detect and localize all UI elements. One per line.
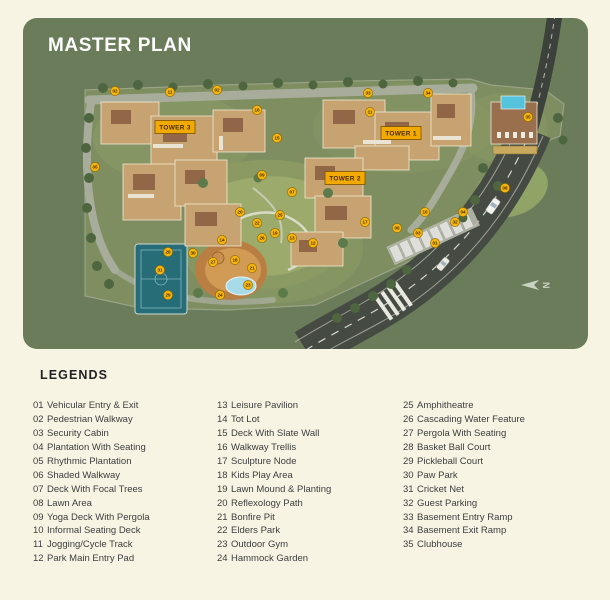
map-marker: 08 bbox=[500, 183, 509, 192]
legend-item-number: 33 bbox=[403, 512, 417, 523]
map-marker: 24 bbox=[215, 290, 224, 299]
map-marker-number: 12 bbox=[310, 241, 316, 246]
legend-item-number: 06 bbox=[33, 470, 47, 481]
legend-item-label: Rhythmic Plantation bbox=[47, 456, 131, 467]
legends-section: LEGENDS 01Vehicular Entry & Exit02Pedest… bbox=[33, 368, 595, 583]
map-marker-number: 21 bbox=[249, 266, 255, 271]
legend-item: 15Deck With Slate Wall bbox=[217, 427, 397, 441]
map-marker-number: 25 bbox=[277, 213, 283, 218]
map-marker-number: 16 bbox=[254, 108, 260, 113]
map-marker: 17 bbox=[360, 217, 369, 226]
map-marker: 15 bbox=[272, 133, 281, 142]
map-marker-number: 04 bbox=[460, 210, 466, 215]
legend-item: 21Bonfire Pit bbox=[217, 510, 397, 524]
legend-item-number: 25 bbox=[403, 400, 417, 411]
legend-item-label: Basket Ball Court bbox=[417, 442, 490, 453]
legend-item-number: 15 bbox=[217, 428, 231, 439]
legend-item-number: 35 bbox=[403, 539, 417, 550]
map-marker-number: 18 bbox=[232, 258, 238, 263]
legend-item: 12Park Main Entry Pad bbox=[33, 552, 213, 566]
legend-item: 08Lawn Area bbox=[33, 496, 213, 510]
map-marker-number: 26 bbox=[259, 236, 265, 241]
map-marker-number: 14 bbox=[219, 238, 225, 243]
legend-item-number: 09 bbox=[33, 512, 47, 523]
map-marker-number: 02 bbox=[112, 89, 118, 94]
map-marker-number: 11 bbox=[168, 90, 173, 95]
map-marker: 16 bbox=[252, 105, 261, 114]
legend-item-number: 16 bbox=[217, 442, 231, 453]
legend-item-number: 08 bbox=[33, 498, 47, 509]
legend-item-label: Basement Exit Ramp bbox=[417, 525, 506, 536]
legend-item-label: Lawn Area bbox=[47, 498, 92, 509]
map-marker-number: 03 bbox=[415, 231, 421, 236]
legend-item: 30Paw Park bbox=[403, 468, 583, 482]
legend-item-label: Plantation With Seating bbox=[47, 442, 146, 453]
master-plan-page: MASTER PLAN bbox=[0, 0, 610, 600]
legend-item-number: 10 bbox=[33, 525, 47, 536]
legend-item-label: Lawn Mound & Planting bbox=[231, 484, 331, 495]
legend-item-label: Kids Play Area bbox=[231, 470, 293, 481]
legend-item-label: Park Main Entry Pad bbox=[47, 553, 134, 564]
legend-item: 19Lawn Mound & Planting bbox=[217, 482, 397, 496]
legends-heading: LEGENDS bbox=[40, 368, 595, 382]
legend-item: 18Kids Play Area bbox=[217, 468, 397, 482]
legend-item: 20Reflexology Path bbox=[217, 496, 397, 510]
legend-item-number: 24 bbox=[217, 553, 231, 564]
legend-item-label: Leisure Pavilion bbox=[231, 400, 298, 411]
legend-item-number: 12 bbox=[33, 553, 47, 564]
map-marker: 33 bbox=[363, 88, 372, 97]
legend-item-number: 13 bbox=[217, 400, 231, 411]
tower-label: TOWER 3 bbox=[155, 121, 195, 134]
legend-item-number: 28 bbox=[403, 442, 417, 453]
legend-item: 31Cricket Net bbox=[403, 482, 583, 496]
legend-item-label: Deck With Slate Wall bbox=[231, 428, 319, 439]
legend-item-label: Yoga Deck With Pergola bbox=[47, 512, 150, 523]
legend-item-number: 02 bbox=[33, 414, 47, 425]
master-plan-panel: MASTER PLAN bbox=[23, 18, 588, 349]
map-marker: 09 bbox=[257, 170, 266, 179]
sports-court bbox=[135, 244, 187, 314]
legend-item-label: Vehicular Entry & Exit bbox=[47, 400, 138, 411]
map-marker-number: 07 bbox=[289, 190, 295, 195]
tower-label: TOWER 2 bbox=[325, 172, 365, 185]
legend-item: 05Rhythmic Plantation bbox=[33, 455, 213, 469]
legend-item-number: 03 bbox=[33, 428, 47, 439]
map-marker-number: 11 bbox=[368, 110, 373, 115]
legend-item-number: 01 bbox=[33, 400, 47, 411]
map-marker: 34 bbox=[423, 88, 432, 97]
legend-item: 35Clubhouse bbox=[403, 538, 583, 552]
legend-item-number: 05 bbox=[33, 456, 47, 467]
legend-item-number: 34 bbox=[403, 525, 417, 536]
page-title: MASTER PLAN bbox=[48, 35, 192, 57]
legend-item: 25Amphitheatre bbox=[403, 399, 583, 413]
legend-item: 34Basement Exit Ramp bbox=[403, 524, 583, 538]
legend-columns: 01Vehicular Entry & Exit02Pedestrian Wal… bbox=[33, 399, 595, 574]
map-marker: 18 bbox=[230, 255, 239, 264]
map-marker: 29 bbox=[163, 290, 172, 299]
legend-item-label: Reflexology Path bbox=[231, 498, 303, 509]
legend-item-number: 29 bbox=[403, 456, 417, 467]
map-marker-number: 34 bbox=[425, 91, 431, 96]
legend-item-number: 30 bbox=[403, 470, 417, 481]
map-marker-number: 17 bbox=[362, 220, 368, 225]
map-marker: 22 bbox=[252, 218, 261, 227]
legend-item-number: 26 bbox=[403, 414, 417, 425]
legend-item: 11Jogging/Cycle Track bbox=[33, 538, 213, 552]
legend-item: 17Sculpture Node bbox=[217, 455, 397, 469]
map-marker: 03 bbox=[413, 228, 422, 237]
legend-item-label: Basement Entry Ramp bbox=[417, 512, 513, 523]
legend-item-label: Amphitheatre bbox=[417, 400, 474, 411]
legend-item-label: Clubhouse bbox=[417, 539, 462, 550]
map-marker: 11 bbox=[365, 107, 374, 116]
legend-item-label: Pedestrian Walkway bbox=[47, 414, 133, 425]
map-marker: 12 bbox=[308, 238, 317, 247]
map-marker: 35 bbox=[523, 112, 532, 121]
map-marker-number: 22 bbox=[254, 221, 260, 226]
legend-item-label: Pergola With Seating bbox=[417, 428, 506, 439]
legend-item: 04Plantation With Seating bbox=[33, 441, 213, 455]
legend-item-label: Guest Parking bbox=[417, 498, 477, 509]
legend-item-label: Tot Lot bbox=[231, 414, 260, 425]
legend-item-label: Walkway Trellis bbox=[231, 442, 296, 453]
map-marker-number: 19 bbox=[272, 231, 278, 236]
legend-item: 02Pedestrian Walkway bbox=[33, 413, 213, 427]
legend-item-number: 07 bbox=[33, 484, 47, 495]
legend-item: 09Yoga Deck With Pergola bbox=[33, 510, 213, 524]
legend-item: 24Hammock Garden bbox=[217, 552, 397, 566]
map-marker-number: 35 bbox=[525, 115, 531, 120]
map-marker: 20 bbox=[235, 207, 244, 216]
legend-item-label: Cricket Net bbox=[417, 484, 464, 495]
legend-item-number: 31 bbox=[403, 484, 417, 495]
legend-item: 06Shaded Walkway bbox=[33, 468, 213, 482]
legend-item: 23Outdoor Gym bbox=[217, 538, 397, 552]
legend-item-number: 22 bbox=[217, 525, 231, 536]
map-marker: 27 bbox=[208, 257, 217, 266]
map-marker-number: 27 bbox=[210, 260, 216, 265]
map-marker-number: 28 bbox=[165, 250, 171, 255]
legend-item: 16Walkway Trellis bbox=[217, 441, 397, 455]
legend-item-number: 32 bbox=[403, 498, 417, 509]
legend-item: 22Elders Park bbox=[217, 524, 397, 538]
map-marker-number: 09 bbox=[259, 173, 265, 178]
legend-item-number: 14 bbox=[217, 414, 231, 425]
legend-item-number: 11 bbox=[33, 539, 47, 550]
map-marker: 06 bbox=[392, 223, 401, 232]
map-marker: 19 bbox=[270, 228, 279, 237]
map-marker: 28 bbox=[163, 247, 172, 256]
map-marker: 11 bbox=[165, 87, 174, 96]
map-marker-number: 10 bbox=[422, 210, 428, 215]
map-marker: 21 bbox=[247, 263, 256, 272]
legend-item-label: Outdoor Gym bbox=[231, 539, 288, 550]
map-marker: 25 bbox=[275, 210, 284, 219]
legend-item-number: 21 bbox=[217, 512, 231, 523]
legend-item: 07Deck With Focal Trees bbox=[33, 482, 213, 496]
legend-item: 27Pergola With Seating bbox=[403, 427, 583, 441]
map-marker-number: 24 bbox=[217, 293, 223, 298]
map-marker-number: 30 bbox=[190, 251, 196, 256]
map-marker-number: 13 bbox=[289, 236, 295, 241]
map-marker-number: 29 bbox=[165, 293, 171, 298]
map-marker: 10 bbox=[420, 207, 429, 216]
legend-item-number: 19 bbox=[217, 484, 231, 495]
map-marker: 01 bbox=[430, 238, 439, 247]
legend-item: 10Informal Seating Deck bbox=[33, 524, 213, 538]
legend-column: 01Vehicular Entry & Exit02Pedestrian Wal… bbox=[33, 399, 213, 566]
map-marker: 14 bbox=[217, 235, 226, 244]
map-marker: 13 bbox=[287, 233, 296, 242]
tower-label-text: TOWER 3 bbox=[159, 124, 191, 131]
tower-label-text: TOWER 2 bbox=[329, 175, 361, 182]
map-marker: 05 bbox=[90, 162, 99, 171]
legend-item-number: 27 bbox=[403, 428, 417, 439]
legend-item: 14Tot Lot bbox=[217, 413, 397, 427]
north-arrow-icon: N bbox=[521, 280, 551, 290]
map-marker-number: 15 bbox=[274, 136, 280, 141]
legend-item-label: Informal Seating Deck bbox=[47, 525, 140, 536]
site-plan-map: N TOWER 3TOWER 1TOWER 2 0211021615333411… bbox=[23, 18, 588, 349]
legend-item-label: Deck With Focal Trees bbox=[47, 484, 143, 495]
legend-item: 32Guest Parking bbox=[403, 496, 583, 510]
legend-item-label: Cascading Water Feature bbox=[417, 414, 525, 425]
map-marker: 02 bbox=[212, 85, 221, 94]
map-marker: 04 bbox=[458, 207, 467, 216]
legend-item-number: 18 bbox=[217, 470, 231, 481]
legend-item-label: Paw Park bbox=[417, 470, 458, 481]
legend-item-number: 17 bbox=[217, 456, 231, 467]
map-marker-number: 08 bbox=[502, 186, 508, 191]
legend-item: 13Leisure Pavilion bbox=[217, 399, 397, 413]
map-marker-number: 31 bbox=[157, 268, 163, 273]
legend-item: 28Basket Ball Court bbox=[403, 441, 583, 455]
tower-label-text: TOWER 1 bbox=[385, 130, 417, 137]
map-marker: 31 bbox=[155, 265, 164, 274]
legend-item-number: 20 bbox=[217, 498, 231, 509]
map-marker: 02 bbox=[110, 86, 119, 95]
legend-item: 03Security Cabin bbox=[33, 427, 213, 441]
map-marker-number: 02 bbox=[214, 88, 220, 93]
map-marker-number: 23 bbox=[245, 283, 251, 288]
legend-column: 25Amphitheatre26Cascading Water Feature2… bbox=[403, 399, 583, 552]
tower-label: TOWER 1 bbox=[381, 127, 421, 140]
legend-item-label: Jogging/Cycle Track bbox=[47, 539, 133, 550]
legend-item-label: Shaded Walkway bbox=[47, 470, 120, 481]
legend-item-label: Sculpture Node bbox=[231, 456, 296, 467]
map-marker-number: 05 bbox=[92, 165, 98, 170]
map-marker-number: 32 bbox=[452, 220, 458, 225]
map-marker: 26 bbox=[257, 233, 266, 242]
legend-item-label: Bonfire Pit bbox=[231, 512, 275, 523]
legend-item: 26Cascading Water Feature bbox=[403, 413, 583, 427]
legend-item-label: Security Cabin bbox=[47, 428, 109, 439]
legend-item-number: 23 bbox=[217, 539, 231, 550]
legend-item: 29Pickleball Court bbox=[403, 455, 583, 469]
map-marker: 32 bbox=[450, 217, 459, 226]
svg-text:N: N bbox=[541, 282, 551, 289]
legend-item-label: Hammock Garden bbox=[231, 553, 308, 564]
map-marker-number: 01 bbox=[432, 241, 438, 246]
legend-item: 33Basement Entry Ramp bbox=[403, 510, 583, 524]
map-marker-number: 06 bbox=[394, 226, 400, 231]
map-marker: 23 bbox=[243, 280, 252, 289]
legend-item-number: 04 bbox=[33, 442, 47, 453]
legend-column: 13Leisure Pavilion14Tot Lot15Deck With S… bbox=[217, 399, 397, 566]
legend-item-label: Pickleball Court bbox=[417, 456, 483, 467]
map-marker-number: 20 bbox=[237, 210, 243, 215]
map-marker: 30 bbox=[188, 248, 197, 257]
map-marker: 07 bbox=[287, 187, 296, 196]
legend-item-label: Elders Park bbox=[231, 525, 280, 536]
map-marker-number: 33 bbox=[365, 91, 371, 96]
legend-item: 01Vehicular Entry & Exit bbox=[33, 399, 213, 413]
